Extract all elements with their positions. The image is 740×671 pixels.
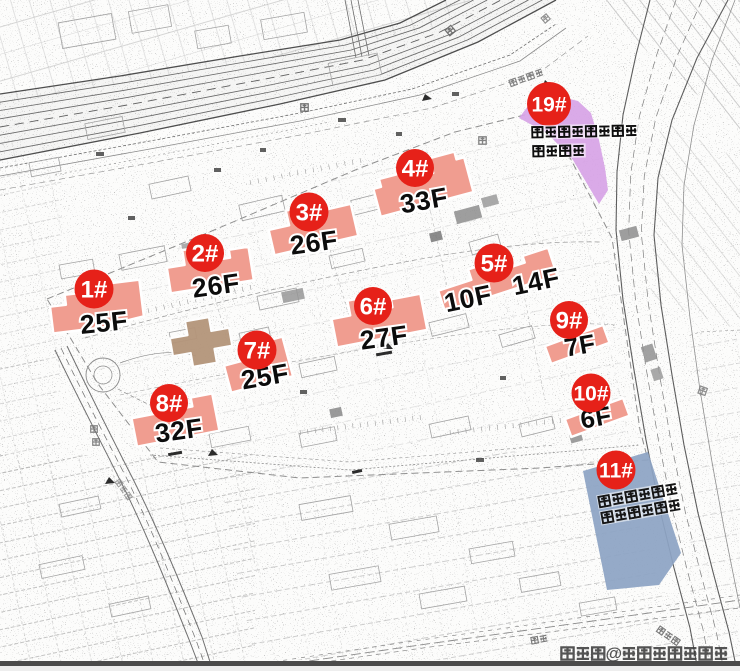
svg-text:1#: 1# bbox=[81, 277, 108, 304]
svg-text:7#: 7# bbox=[244, 338, 271, 365]
svg-text:8#: 8# bbox=[156, 391, 183, 418]
svg-text:25F: 25F bbox=[79, 305, 130, 340]
svg-text:10#: 10# bbox=[573, 382, 608, 405]
svg-text:19#: 19# bbox=[531, 93, 566, 116]
svg-text:11#: 11# bbox=[599, 459, 633, 482]
svg-text:2#: 2# bbox=[192, 241, 219, 268]
svg-text:9#: 9# bbox=[556, 308, 583, 335]
svg-text:6#: 6# bbox=[360, 294, 387, 321]
svg-text:5#: 5# bbox=[481, 251, 508, 278]
svg-text:3#: 3# bbox=[296, 200, 323, 227]
svg-text:4#: 4# bbox=[402, 156, 429, 183]
svg-text:@: @ bbox=[606, 644, 623, 663]
